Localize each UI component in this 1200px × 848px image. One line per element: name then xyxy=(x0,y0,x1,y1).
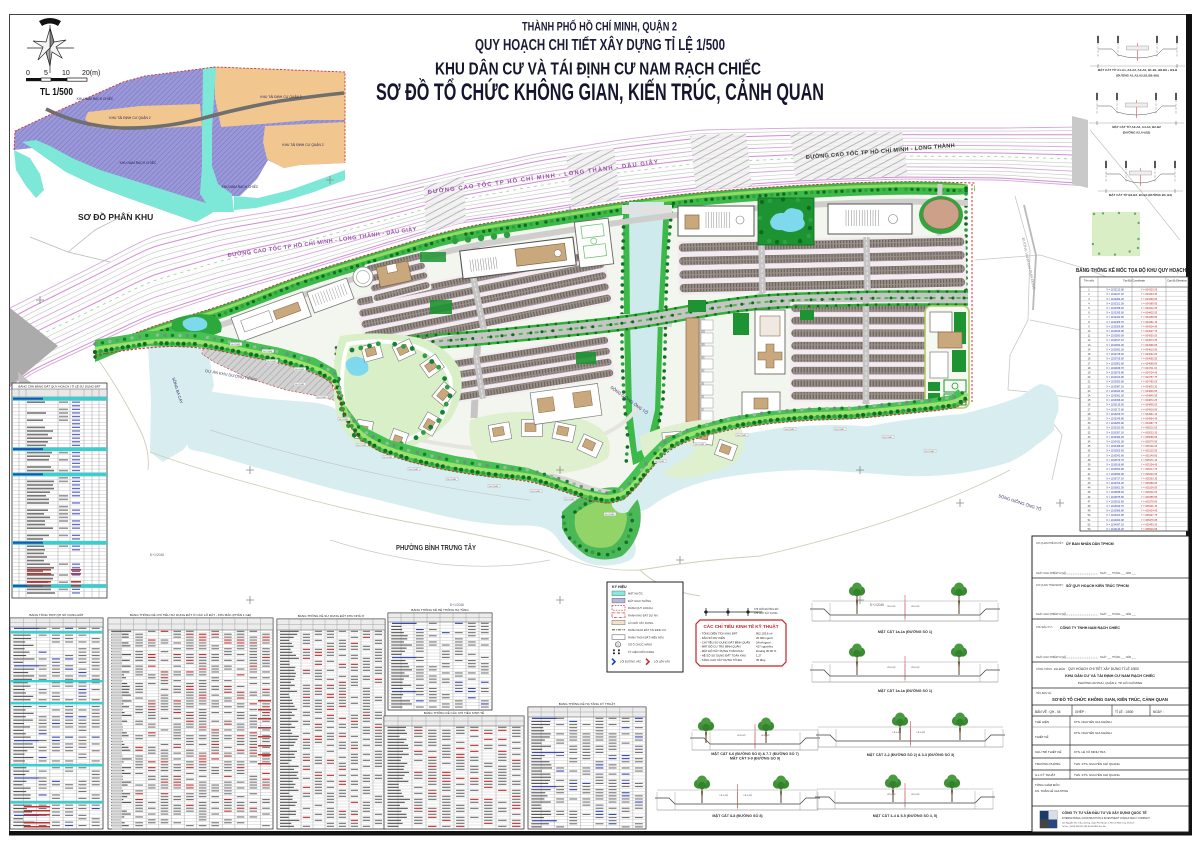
svg-text:KHU NAM RẠCH CHIẾC: KHU NAM RẠCH CHIẾC xyxy=(120,160,157,165)
svg-text:- TẦNG CAO XÂY DỰNG TỐI ĐA: - TẦNG CAO XÂY DỰNG TỐI ĐA xyxy=(700,657,742,662)
svg-text:Đ+2.048: Đ+2.048 xyxy=(532,491,541,493)
svg-text:ỦY BAN NHÂN DÂN TPHCM: ỦY BAN NHÂN DÂN TPHCM xyxy=(1066,541,1114,546)
svg-text:LỀ Đ.BỘ: LỀ Đ.BỘ xyxy=(911,666,920,669)
svg-text:X = 1193357.18: X = 1193357.18 xyxy=(1106,431,1124,434)
svg-text:X = 1193986.88: X = 1193986.88 xyxy=(1106,510,1124,513)
svg-text:CÁC CHỈ TIÊU KINH TẾ KỸ THUẬT: CÁC CHỈ TIÊU KINH TẾ KỸ THUẬT xyxy=(703,622,778,629)
svg-text:LỀ Đ.BỘ: LỀ Đ.BỘ xyxy=(893,731,902,734)
svg-text:Đ+2.048: Đ+2.048 xyxy=(884,437,893,439)
svg-text:BẢNG TỔNG HỢP QH SỬ DỤNG ĐẤT: BẢNG TỔNG HỢP QH SỬ DỤNG ĐẤT xyxy=(29,612,83,617)
svg-text:X = 1193616.88: X = 1193616.88 xyxy=(1106,464,1124,467)
svg-text:SỞ QUY HOẠCH KIẾN TRÚC TPHCM: SỞ QUY HOẠCH KIẾN TRÚC TPHCM xyxy=(1066,583,1129,588)
svg-text:MẶT CẮT 9-9 (ĐƯỜNG SỐ 9): MẶT CẮT 9-9 (ĐƯỜNG SỐ 9) xyxy=(730,756,781,761)
svg-text:X = 1193912.68: X = 1193912.68 xyxy=(1106,500,1124,503)
svg-text:Tên mốc: Tên mốc xyxy=(1084,279,1095,283)
svg-text:RANH KHU ĐẤT DỰ ÁN: RANH KHU ĐẤT DỰ ÁN xyxy=(628,614,658,618)
svg-text:Đ+1/2048: Đ+1/2048 xyxy=(450,603,464,607)
svg-text:Y = 605378.85: Y = 605378.85 xyxy=(1141,500,1158,503)
svg-text:20(m): 20(m) xyxy=(82,70,100,77)
svg-text:KHU NAM RẠCH CHIẾC: KHU NAM RẠCH CHIẾC xyxy=(222,184,259,189)
svg-text:- MẬT ĐỘ CƯ TRÚ BÌNH QUÂN: - MẬT ĐỘ CƯ TRÚ BÌNH QUÂN xyxy=(700,644,741,649)
svg-text:X = 1194023.98: X = 1194023.98 xyxy=(1106,514,1124,517)
svg-text:NGÀY ___ THÁNG ___ NĂM ___: NGÀY ___ THÁNG ___ NĂM ___ xyxy=(1100,613,1136,616)
svg-text:Đ+2.048: Đ+2.048 xyxy=(786,429,795,431)
svg-text:Đ+2.048: Đ+2.048 xyxy=(656,461,665,463)
svg-text:X = 1194097.18: X = 1194097.18 xyxy=(1106,523,1124,526)
svg-text:QUY HOẠCH CHI TIẾT XÂY DỰNG TỈ: QUY HOẠCH CHI TIẾT XÂY DỰNG TỈ LỆ 1/500 xyxy=(1068,666,1139,671)
svg-text:Y = 605263.35: Y = 605263.35 xyxy=(1141,477,1158,480)
svg-text:KHU DÂN CƯ VÀ TÁI ĐỊNH CƯ NAM: KHU DÂN CƯ VÀ TÁI ĐỊNH CƯ NAM RẠCH CHIẾC xyxy=(435,58,761,79)
svg-text:Y = 604527.75: Y = 604527.75 xyxy=(1141,330,1158,333)
svg-text:1,27: 1,27 xyxy=(756,654,762,658)
svg-text:KTS. LÊ VŨ MINH TRA: KTS. LÊ VŨ MINH TRA xyxy=(1074,749,1105,754)
svg-text:BẢNG THỐNG KÊ CHỈ TIÊU SỬ DỤNG: BẢNG THỐNG KÊ CHỈ TIÊU SỬ DỤNG ĐẤT Ở CÁC… xyxy=(130,612,251,617)
svg-text:KHU TÁI ĐỊNH CƯ QUẬN 2: KHU TÁI ĐỊNH CƯ QUẬN 2 xyxy=(282,143,323,147)
svg-text:X = 1193690.08: X = 1193690.08 xyxy=(1106,473,1124,476)
svg-text:Y = 605493.35: Y = 605493.35 xyxy=(1141,523,1158,526)
svg-text:X = 1193283.98: X = 1193283.98 xyxy=(1106,422,1124,425)
svg-text:G.L KỸ THUẬT: G.L KỸ THUẬT xyxy=(1035,772,1056,777)
svg-text:Y = 604481.15: Y = 604481.15 xyxy=(1141,321,1158,324)
svg-text:X = 1193024.28: X = 1193024.28 xyxy=(1106,390,1124,393)
svg-text:Y = 605424.45: Y = 605424.45 xyxy=(1141,510,1158,513)
svg-text:X = 1193394.28: X = 1193394.28 xyxy=(1106,436,1124,439)
svg-text:LỀ Đ.BỘ: LỀ Đ.BỘ xyxy=(911,793,920,796)
svg-text:KHU TÁI ĐỊNH CƯ QUẬN 2: KHU TÁI ĐỊNH CƯ QUẬN 2 xyxy=(260,95,301,99)
svg-text:Đ+2.048: Đ+2.048 xyxy=(926,451,935,453)
svg-text:X = 1192987.18: X = 1192987.18 xyxy=(1106,385,1124,388)
svg-text:BẢNG THỐNG KÊ CÁC CHỈ TIÊU KIN: BẢNG THỐNG KÊ CÁC CHỈ TIÊU KINH TẾ xyxy=(424,710,484,715)
svg-text:Y = 604918.85: Y = 604918.85 xyxy=(1141,408,1158,411)
svg-text:Y = 604987.75: Y = 604987.75 xyxy=(1141,422,1158,425)
svg-text:Y = 604320.05: Y = 604320.05 xyxy=(1141,289,1158,292)
svg-text:Đ+2.048: Đ+2.048 xyxy=(264,351,273,353)
svg-text:X = 1193542.68: X = 1193542.68 xyxy=(1106,454,1124,457)
svg-text:X = 1192321.38: X = 1192321.38 xyxy=(1106,302,1124,305)
svg-text:Y = 605148.85: Y = 605148.85 xyxy=(1141,454,1158,457)
svg-text:KTS. NGUYỄN GIA KHÁNH: KTS. NGUYỄN GIA KHÁNH xyxy=(1074,730,1112,735)
svg-text:X = 1193801.38: X = 1193801.38 xyxy=(1106,487,1124,490)
svg-text:QUY HOẠCH CHI TIẾT XÂY DỰNG TỈ: QUY HOẠCH CHI TIẾT XÂY DỰNG TỈ LỆ 1/500 xyxy=(475,36,725,54)
svg-text:Y = 605194.45: Y = 605194.45 xyxy=(1141,464,1158,467)
svg-text:KHU NAM RẠCH CHIẾC: KHU NAM RẠCH CHIẾC xyxy=(77,96,114,101)
svg-text:- TỔNG DIỆN TÍCH KHU ĐẤT: - TỔNG DIỆN TÍCH KHU ĐẤT xyxy=(700,631,738,636)
svg-text:PHƯỜNG BÌNH TRƯNG TÂY: PHƯỜNG BÌNH TRƯNG TÂY xyxy=(396,543,476,552)
svg-text:X = 1192543.98: X = 1192543.98 xyxy=(1106,330,1124,333)
svg-text:CHỦ ĐẦU TƯ :: CHỦ ĐẦU TƯ : xyxy=(1036,626,1053,629)
svg-text:KHU TÁI ĐỊNH CƯ QUẬN 2: KHU TÁI ĐỊNH CƯ QUẬN 2 xyxy=(109,116,150,120)
svg-text:Đ+1/2048: Đ+1/2048 xyxy=(870,603,884,607)
svg-text:TÊN BẢN VẼ :: TÊN BẢN VẼ : xyxy=(1036,692,1053,695)
svg-text:Y = 604458.85: Y = 604458.85 xyxy=(1141,316,1158,319)
svg-text:MẶT CẮT 2-2 (ĐƯỜNG SỐ 2) & 3-3: MẶT CẮT 2-2 (ĐƯỜNG SỐ 2) & 3-3 (ĐƯỜNG SỐ… xyxy=(867,752,955,757)
svg-text:Y = 605125.55: Y = 605125.55 xyxy=(1141,450,1158,453)
svg-text:KÝ HIỆU: KÝ HIỆU xyxy=(612,584,627,589)
svg-text:Đ+1/2048: Đ+1/2048 xyxy=(150,553,164,557)
svg-text:TL 1/500: TL 1/500 xyxy=(40,86,73,98)
svg-text:X = 1192765.58: X = 1192765.58 xyxy=(1106,358,1124,361)
svg-text:X = 1193246.88: X = 1193246.88 xyxy=(1106,418,1124,421)
svg-text:TỈ LỆ : 1/500: TỈ LỆ : 1/500 xyxy=(1115,709,1133,714)
svg-text:Đ+2.048: Đ+2.048 xyxy=(232,344,241,346)
svg-text:Đ+2.048: Đ+2.048 xyxy=(836,429,845,431)
svg-text:MẶT CẮT 6-6 (ĐƯỜNG SỐ 6) & 7-7: MẶT CẮT 6-6 (ĐƯỜNG SỐ 6) & 7-7 (ĐƯỜNG SỐ… xyxy=(711,751,799,756)
svg-text:Tel No : (84-8) 8411812 (84-: Tel No : (84-8) 8411812 (84-8) 8411816 F… xyxy=(1062,826,1107,828)
svg-text:NGÀY :: NGÀY : xyxy=(1153,710,1164,714)
svg-text:Y = 605470.05: Y = 605470.05 xyxy=(1141,519,1158,522)
svg-text:Y = 604343.35: Y = 604343.35 xyxy=(1141,293,1158,296)
svg-text:TỔNG GIÁM ĐỐC :: TỔNG GIÁM ĐỐC : xyxy=(1035,782,1062,787)
svg-text:Y = 604688.85: Y = 604688.85 xyxy=(1141,362,1158,365)
svg-text:Y = 604389.95: Y = 604389.95 xyxy=(1141,302,1158,305)
svg-text:- HỆ SỐ SỬ DỤNG ĐẤT TOÀN KHU: - HỆ SỐ SỬ DỤNG ĐẤT TOÀN KHU xyxy=(700,653,746,658)
svg-text:- CHỈ TIÊU SỬ DỤNG ĐẤT BÌNH QU: - CHỈ TIÊU SỬ DỤNG ĐẤT BÌNH QUÂN xyxy=(700,639,750,644)
svg-text:SƠ ĐỒ TỔ CHỨC KHÔNG GIAN, KIẾN: SƠ ĐỒ TỔ CHỨC KHÔNG GIAN, KIẾN TRÚC, CẢN… xyxy=(1052,697,1168,702)
svg-text:LỀ Đ.BỘ: LỀ Đ.BỘ xyxy=(761,734,770,737)
svg-text:X = 1193320.08: X = 1193320.08 xyxy=(1106,427,1124,430)
svg-text:RANH QUY HOẠCH: RANH QUY HOẠCH xyxy=(628,606,653,610)
svg-text:BẢN VẼ : QH - 04: BẢN VẼ : QH - 04 xyxy=(1035,709,1061,714)
svg-text:X = 1192617.18: X = 1192617.18 xyxy=(1106,339,1124,342)
svg-text:35 tầng: 35 tầng xyxy=(756,658,766,662)
svg-text:X = 1192358.48: X = 1192358.48 xyxy=(1106,307,1124,310)
svg-text:5: 5 xyxy=(44,70,48,77)
svg-text:Y = 604872.25: Y = 604872.25 xyxy=(1141,399,1158,402)
svg-text:GHÉP :: GHÉP : xyxy=(1075,709,1086,714)
svg-text:Y = 604550.05: Y = 604550.05 xyxy=(1141,335,1158,338)
svg-text:Y = 605332.25: Y = 605332.25 xyxy=(1141,491,1158,494)
svg-text:X = 1192247.18: X = 1192247.18 xyxy=(1106,293,1124,296)
svg-text:X = 1192432.68: X = 1192432.68 xyxy=(1106,316,1124,319)
svg-text:Y = 605102.25: Y = 605102.25 xyxy=(1141,445,1158,448)
svg-text:Đ+2.048: Đ+2.048 xyxy=(358,445,367,447)
svg-text:X = 1193949.78: X = 1193949.78 xyxy=(1106,505,1124,508)
svg-text:Y = 604596.65: Y = 604596.65 xyxy=(1141,344,1158,347)
svg-text:CÔNG TY TƯ VẤN ĐẦU TƯ VÀ XÂY D: CÔNG TY TƯ VẤN ĐẦU TƯ VÀ XÂY DỰNG QUỐC T… xyxy=(1062,810,1147,815)
svg-text:LỀ Đ.BỘ: LỀ Đ.BỘ xyxy=(720,794,729,797)
svg-text:THỂ HIỆN: THỂ HIỆN xyxy=(1035,719,1049,724)
svg-text:khoảng 30,06 %: khoảng 30,06 % xyxy=(756,649,777,653)
svg-text:BẢNG CÂN BẰNG ĐẤT QUY HOẠCH |: BẢNG CÂN BẰNG ĐẤT QUY HOẠCH | TỈ LỆ SỬ D… xyxy=(18,384,100,389)
svg-text:CƠ QUAN PHÊ DUYỆT :: CƠ QUAN PHÊ DUYỆT : xyxy=(1036,542,1065,545)
svg-text:X = 1193764.28: X = 1193764.28 xyxy=(1106,482,1124,485)
svg-text:Tọa Độ Coordinate: Tọa Độ Coordinate xyxy=(1123,279,1145,283)
svg-text:(ĐƯỜNG A1,A3,A2,B1,B8+B9): (ĐƯỜNG A1,A3,A2,B1,B8+B9) xyxy=(1116,73,1159,78)
svg-text:Đ+2.048: Đ+2.048 xyxy=(268,361,277,363)
svg-text:X = 1192469.78: X = 1192469.78 xyxy=(1106,321,1124,324)
svg-text:Y = 605056.65: Y = 605056.65 xyxy=(1141,436,1158,439)
svg-text:LỀ Đ.BỘ: LỀ Đ.BỘ xyxy=(917,731,926,734)
svg-text:Đ+2.048: Đ+2.048 xyxy=(566,499,575,501)
svg-text:RANH GIAO ĐẤT TÁI ĐỊNH CƯ: RANH GIAO ĐẤT TÁI ĐỊNH CƯ xyxy=(628,628,667,632)
svg-text:Y = 604941.15: Y = 604941.15 xyxy=(1141,413,1158,416)
svg-text:Y = 604366.65: Y = 604366.65 xyxy=(1141,298,1158,301)
svg-text:0: 0 xyxy=(26,70,30,77)
svg-text:X = 1192802.68: X = 1192802.68 xyxy=(1106,362,1124,365)
svg-text:MẶT CẮT 4-4 & 5-5 (ĐƯỜNG SỐ 4,: MẶT CẮT 4-4 & 5-5 (ĐƯỜNG SỐ 4, 5) xyxy=(873,813,938,818)
svg-text:Y = 604757.75: Y = 604757.75 xyxy=(1141,376,1158,379)
svg-text:X = 1193098.48: X = 1193098.48 xyxy=(1106,399,1124,402)
svg-text:(ĐƯỜNG A2,A4,B2): (ĐƯỜNG A2,A4,B2) xyxy=(1123,130,1151,135)
svg-text:Y = 605171.15: Y = 605171.15 xyxy=(1141,459,1158,462)
svg-text:Y = 605447.75: Y = 605447.75 xyxy=(1141,514,1158,517)
svg-text:X = 1192580.08: X = 1192580.08 xyxy=(1106,335,1124,338)
svg-text:Y = 604619.95: Y = 604619.95 xyxy=(1141,349,1158,352)
svg-text:X = 1192210.08: X = 1192210.08 xyxy=(1106,289,1124,292)
svg-text:Y = 604642.25: Y = 604642.25 xyxy=(1141,353,1158,356)
svg-text:20.000 người: 20.000 người xyxy=(756,636,773,640)
svg-text:X = 1192950.08: X = 1192950.08 xyxy=(1106,381,1124,384)
svg-text:X = 1192913.98: X = 1192913.98 xyxy=(1106,376,1124,379)
svg-text:CÔNG TRÌNH - ĐỊA ĐIỂM :: CÔNG TRÌNH - ĐỊA ĐIỂM : xyxy=(1036,668,1067,671)
svg-text:Y = 605516.65: Y = 605516.65 xyxy=(1141,528,1158,531)
svg-text:X = 1194134.28: X = 1194134.28 xyxy=(1106,528,1124,531)
svg-text:X = 1192506.88: X = 1192506.88 xyxy=(1106,325,1124,328)
svg-text:INTERNATIONAL CONSTRUCTION & I: INTERNATIONAL CONSTRUCTION & INVESTMENT … xyxy=(1062,817,1150,820)
svg-text:MẶT CẮT TỪ A1-A1, A3-A3, A2-A2: MẶT CẮT TỪ A1-A1, A3-A3, A2-A2, B1-B1, B… xyxy=(1098,67,1178,72)
svg-text:NGÀY ___ THÁNG ___ NĂM ___: NGÀY ___ THÁNG ___ NĂM ___ xyxy=(1100,572,1136,575)
svg-text:MẶT CẮT TỪ B3-B3, B4-B4 (ĐƯỜNG: MẶT CẮT TỪ B3-B3, B4-B4 (ĐƯỜNG B3, B4) xyxy=(1109,192,1172,197)
svg-text:X = 1193209.78: X = 1193209.78 xyxy=(1106,413,1124,416)
svg-text:X = 1192654.28: X = 1192654.28 xyxy=(1106,344,1124,347)
svg-text:Đ+2.048: Đ+2.048 xyxy=(318,397,327,399)
svg-text:X = 1192839.78: X = 1192839.78 xyxy=(1106,367,1124,370)
svg-text:X = 1194060.08: X = 1194060.08 xyxy=(1106,519,1124,522)
svg-text:Đ+2.048: Đ+2.048 xyxy=(296,369,305,371)
svg-text:NGÀY GIAO NHIỆM VỤ SỐ: NGÀY GIAO NHIỆM VỤ SỐ xyxy=(1036,613,1066,616)
svg-text:LỀ Đ.BỘ: LỀ Đ.BỘ xyxy=(887,793,896,796)
svg-text:BẢNG THỐNG KÊ HẠ TẦNG KỸ THUẬT: BẢNG THỐNG KÊ HẠ TẦNG KỸ THUẬT xyxy=(559,701,615,706)
svg-text:Y = 604895.55: Y = 604895.55 xyxy=(1141,404,1158,407)
svg-text:Đ+2.048: Đ+2.048 xyxy=(696,444,705,446)
svg-text:X = 1192691.38: X = 1192691.38 xyxy=(1106,349,1124,352)
svg-text:NGÀY ___ THÁNG ___ NĂM ___: NGÀY ___ THÁNG ___ NĂM ___ xyxy=(1100,656,1136,659)
svg-text:BẢNG THỐNG KÊ SỬ DỤNG ĐẤT KHU: BẢNG THỐNG KÊ SỬ DỤNG ĐẤT KHU NHÀ Ở xyxy=(298,613,365,618)
svg-text:KTS. NGUYỄN GIA KHÁNH: KTS. NGUYỄN GIA KHÁNH xyxy=(1074,719,1112,724)
svg-text:X = 1193875.58: X = 1193875.58 xyxy=(1106,496,1124,499)
svg-text:MẶT CẮT 8-8 (ĐƯỜNG SỐ 8): MẶT CẮT 8-8 (ĐƯỜNG SỐ 8) xyxy=(712,813,763,818)
svg-text:PHƯỜNG AN PHÚ, QUẬN 2, TP. HỒ: PHƯỜNG AN PHÚ, QUẬN 2, TP. HỒ CHÍ MINH xyxy=(1078,680,1142,685)
svg-text:145 Nguyễn Văn Trỗi, phường, Q: 145 Nguyễn Văn Trỗi, phường, Quận Phú Nh… xyxy=(1062,822,1135,825)
svg-text:Cao độ Elevation: Cao độ Elevation xyxy=(1167,279,1187,283)
svg-text:BẢNG THỐNG KÊ MỐC TỌA ĐỘ KHU Q: BẢNG THỐNG KÊ MỐC TỌA ĐỘ KHU QUY HOẠCH xyxy=(1076,266,1186,274)
svg-text:CHỈ GIỚI ĐƯỜNG ĐỎ: CHỈ GIỚI ĐƯỜNG ĐỎ xyxy=(754,608,778,611)
svg-text:THS. KTS. NGUYỄN CHÍ QUANG: THS. KTS. NGUYỄN CHÍ QUANG xyxy=(1074,772,1121,777)
svg-text:X = 1192728.48: X = 1192728.48 xyxy=(1106,353,1124,356)
svg-text:Y = 605033.35: Y = 605033.35 xyxy=(1141,431,1158,434)
svg-text:CƠ QUAN THẨM ĐỊNH :: CƠ QUAN THẨM ĐỊNH : xyxy=(1036,584,1064,587)
svg-text:Y = 604803.35: Y = 604803.35 xyxy=(1141,385,1158,388)
svg-text:X = 1193505.58: X = 1193505.58 xyxy=(1106,450,1124,453)
svg-text:LỀ Đ.BỘ: LỀ Đ.BỘ xyxy=(744,794,753,797)
svg-text:NGÀY GIAO NHIỆM VỤ SỐ: NGÀY GIAO NHIỆM VỤ SỐ xyxy=(1036,656,1066,659)
svg-text:Đ+2.048: Đ+2.048 xyxy=(410,469,419,471)
svg-text:Y = 605309.95: Y = 605309.95 xyxy=(1141,487,1158,490)
svg-text:LỀ Đ.BỘ: LỀ Đ.BỘ xyxy=(887,605,896,608)
svg-text:Y = 604849.95: Y = 604849.95 xyxy=(1141,395,1158,398)
svg-text:Y = 604412.25: Y = 604412.25 xyxy=(1141,307,1158,310)
svg-text:Y = 605217.75: Y = 605217.75 xyxy=(1141,468,1158,471)
svg-text:Y = 605240.05: Y = 605240.05 xyxy=(1141,473,1158,476)
svg-text:Đ+2.048: Đ+2.048 xyxy=(606,514,615,516)
svg-text:Y = 605401.15: Y = 605401.15 xyxy=(1141,505,1158,508)
svg-text:Đ+2.048: Đ+2.048 xyxy=(384,457,393,459)
svg-text:X = 1193838.48: X = 1193838.48 xyxy=(1106,491,1124,494)
svg-text:NGÀY GIAO NHIỆM VỤ SỐ: NGÀY GIAO NHIỆM VỤ SỐ xyxy=(1036,572,1066,575)
svg-text:THÀNH PHỐ HỒ CHÍ MINH, QUẬN 2: THÀNH PHỐ HỒ CHÍ MINH, QUẬN 2 xyxy=(522,19,677,34)
svg-text:Đ+2.048: Đ+2.048 xyxy=(296,384,305,386)
svg-text:KHU DÂN CƯ VÀ TÁI ĐỊNH CƯ NAM: KHU DÂN CƯ VÀ TÁI ĐỊNH CƯ NAM RẠCH CHIẾC xyxy=(1065,673,1155,678)
svg-text:Đ+2.048: Đ+2.048 xyxy=(738,435,747,437)
svg-text:SƠ ĐỒ PHÂN KHU: SƠ ĐỒ PHÂN KHU xyxy=(78,211,153,222)
svg-text:MẶT CẮT TỪ A2-A2, A4-A4, B2-B2: MẶT CẮT TỪ A2-A2, A4-A4, B2-B2 xyxy=(1112,124,1161,129)
svg-text:X = 1193172.68: X = 1193172.68 xyxy=(1106,408,1124,411)
svg-text:- MẬT ĐỘ XÂY DỰNG TOÀN KHU: - MẬT ĐỘ XÂY DỰNG TOÀN KHU xyxy=(700,648,743,653)
svg-text:Y = 605355.55: Y = 605355.55 xyxy=(1141,496,1158,499)
svg-text:X = 1192876.88: X = 1192876.88 xyxy=(1106,372,1124,375)
svg-text:10: 10 xyxy=(62,70,70,77)
svg-text:X = 1193468.48: X = 1193468.48 xyxy=(1106,445,1124,448)
svg-text:24m²/người: 24m²/người xyxy=(756,640,771,644)
svg-text:X = 1193579.78: X = 1193579.78 xyxy=(1106,459,1124,462)
svg-text:Đ+2.048: Đ+2.048 xyxy=(490,486,499,488)
svg-text:THIẾT KẾ: THIẾT KẾ xyxy=(1035,734,1048,739)
svg-text:X = 1193727.18: X = 1193727.18 xyxy=(1106,477,1124,480)
svg-text:Y = 604573.35: Y = 604573.35 xyxy=(1141,339,1158,342)
svg-text:MẶT CẮT 1a-1a (ĐƯỜNG SỐ 1): MẶT CẮT 1a-1a (ĐƯỜNG SỐ 1) xyxy=(878,688,933,693)
svg-text:CÔNG TY TNHH NAM RẠCH CHIẾC: CÔNG TY TNHH NAM RẠCH CHIẾC xyxy=(1060,625,1120,630)
svg-text:THS. KTS. NGUYỄN CHÍ QUANG: THS. KTS. NGUYỄN CHÍ QUANG xyxy=(1074,761,1121,766)
svg-text:Đ+2.048: Đ+2.048 xyxy=(448,479,457,481)
svg-text:Y = 604665.55: Y = 604665.55 xyxy=(1141,358,1158,361)
svg-text:X = 1193653.98: X = 1193653.98 xyxy=(1106,468,1124,471)
svg-text:TRƯỞNG PHÒNG: TRƯỞNG PHÒNG xyxy=(1035,761,1061,766)
svg-text:X = 1193061.38: X = 1193061.38 xyxy=(1106,395,1124,398)
svg-text:KS. TRẦN LÊ CHƯƠNG: KS. TRẦN LÊ CHƯƠNG xyxy=(1035,788,1069,793)
svg-text:X = 1193135.58: X = 1193135.58 xyxy=(1106,404,1124,407)
svg-text:Y = 605286.65: Y = 605286.65 xyxy=(1141,482,1158,485)
svg-text:Y = 604826.65: Y = 604826.65 xyxy=(1141,390,1158,393)
svg-text:CHỦ TRÌ THIẾT KẾ: CHỦ TRÌ THIẾT KẾ xyxy=(1035,749,1061,754)
svg-text:X = 1192284.28: X = 1192284.28 xyxy=(1106,298,1124,301)
svg-text:X = 1193431.38: X = 1193431.38 xyxy=(1106,441,1124,444)
svg-text:802.103,6 m²: 802.103,6 m² xyxy=(756,632,773,636)
svg-text:LỀ Đ.BỘ: LỀ Đ.BỘ xyxy=(737,734,746,737)
svg-text:Y = 604711.15: Y = 604711.15 xyxy=(1141,367,1158,370)
svg-text:Y = 605079.95: Y = 605079.95 xyxy=(1141,441,1158,444)
svg-text:LỀ Đ.BỘ: LỀ Đ.BỘ xyxy=(911,605,920,608)
svg-text:LỀ Đ.BỘ: LỀ Đ.BỘ xyxy=(887,666,896,669)
svg-text:Y = 604964.45: Y = 604964.45 xyxy=(1141,418,1158,421)
svg-text:Y = 604504.45: Y = 604504.45 xyxy=(1141,325,1158,328)
svg-text:417 người/ha: 417 người/ha xyxy=(756,645,773,649)
svg-text:CHỈ GIỚI XÂY DỰNG: CHỈ GIỚI XÂY DỰNG xyxy=(754,612,778,615)
svg-text:SƠ ĐỒ TỔ CHỨC KHÔNG GIAN, KIẾN: SƠ ĐỒ TỔ CHỨC KHÔNG GIAN, KIẾN TRÚC, CẢN… xyxy=(376,77,824,106)
svg-text:Y = 604780.05: Y = 604780.05 xyxy=(1141,381,1158,384)
svg-text:Đ+2.048: Đ+2.048 xyxy=(340,419,349,421)
svg-text:MẶT CẮT 1a-1a (ĐƯỜNG SỐ 1): MẶT CẮT 1a-1a (ĐƯỜNG SỐ 1) xyxy=(878,629,933,634)
svg-text:Y = 604734.45: Y = 604734.45 xyxy=(1141,372,1158,375)
svg-text:BẢNG THỐNG KÊ HỆ THỐNG HẠ TẦNG: BẢNG THỐNG KÊ HỆ THỐNG HẠ TẦNG xyxy=(411,607,469,612)
svg-text:- DÂN SỐ DỰ KIẾN: - DÂN SỐ DỰ KIẾN xyxy=(700,635,725,640)
svg-text:X = 1192395.58: X = 1192395.58 xyxy=(1106,312,1124,315)
svg-text:Y = 605010.05: Y = 605010.05 xyxy=(1141,427,1158,430)
svg-text:Y = 604435.55: Y = 604435.55 xyxy=(1141,312,1158,315)
